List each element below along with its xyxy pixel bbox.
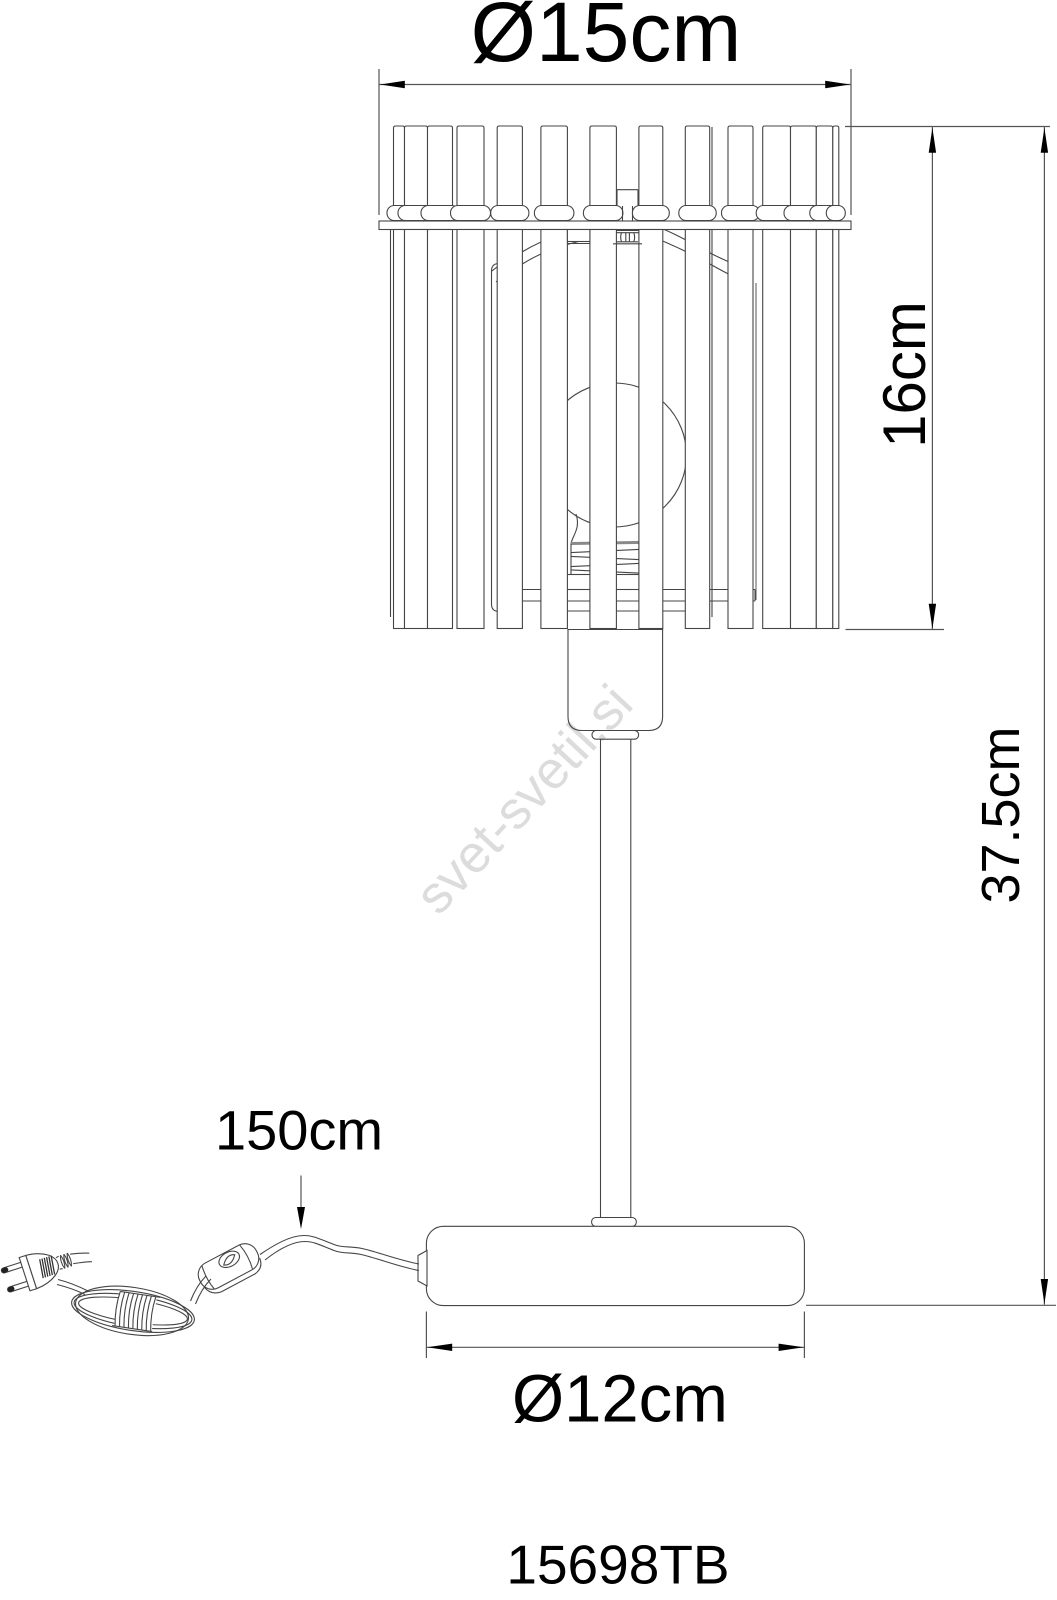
- svg-text:37.5cm: 37.5cm: [971, 726, 1031, 903]
- svg-text:Ø15cm: Ø15cm: [471, 0, 742, 79]
- svg-text:150cm: 150cm: [215, 1099, 383, 1162]
- svg-text:Ø12cm: Ø12cm: [512, 1362, 728, 1437]
- svg-text:16cm: 16cm: [871, 301, 938, 448]
- svg-text:15698TB: 15698TB: [506, 1534, 729, 1596]
